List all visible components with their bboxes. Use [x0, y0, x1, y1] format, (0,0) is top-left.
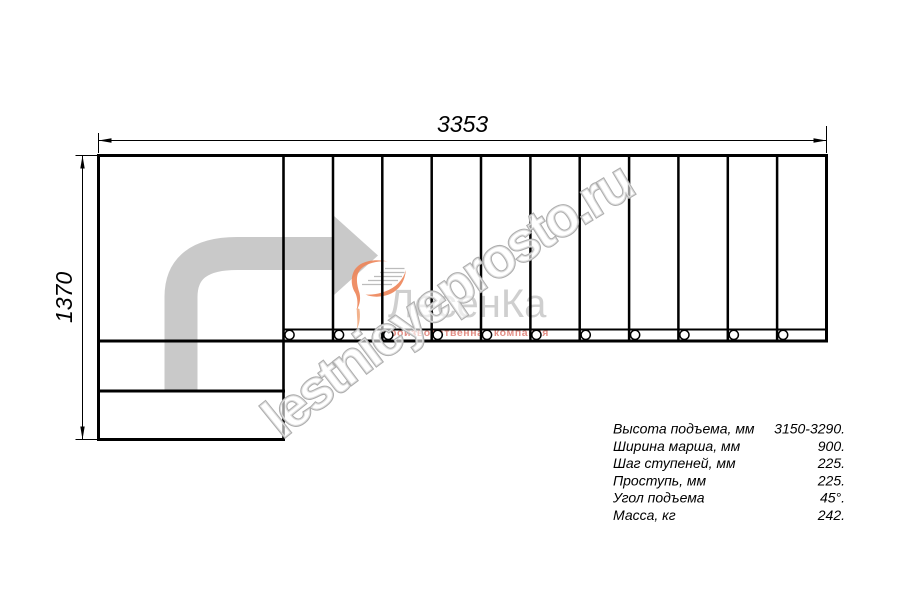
- svg-text:Масса, кг: Масса, кг: [613, 507, 676, 523]
- svg-text:900.: 900.: [818, 438, 845, 454]
- svg-text:3150-3290.: 3150-3290.: [774, 421, 845, 437]
- svg-text:1370: 1370: [51, 272, 77, 323]
- svg-text:Шаг ступеней, мм: Шаг ступеней, мм: [613, 455, 736, 471]
- svg-text:Высота подъема, мм: Высота подъема, мм: [613, 421, 755, 437]
- svg-text:Ширина марша, мм: Ширина марша, мм: [613, 438, 741, 454]
- svg-text:225.: 225.: [817, 472, 845, 488]
- svg-text:242.: 242.: [817, 507, 845, 523]
- svg-text:Проступь, мм: Проступь, мм: [613, 472, 707, 488]
- svg-text:Угол подъема: Угол подъема: [612, 490, 705, 506]
- svg-text:3353: 3353: [437, 111, 488, 137]
- svg-text:45°.: 45°.: [820, 490, 845, 506]
- svg-text:225.: 225.: [817, 455, 845, 471]
